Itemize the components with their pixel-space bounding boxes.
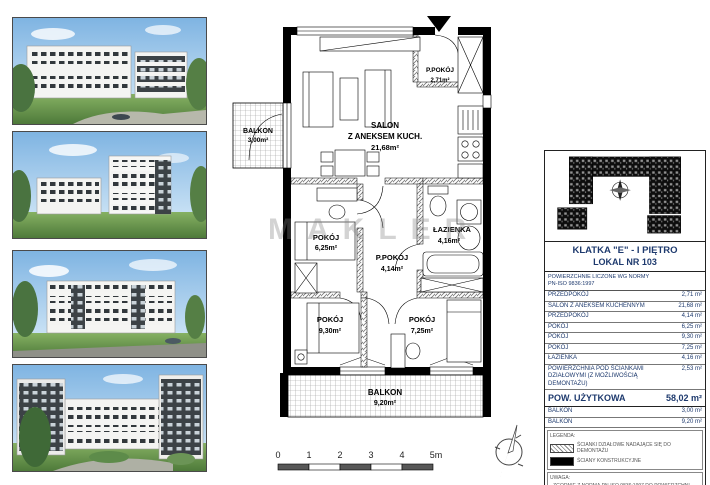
building-render-1 <box>13 18 206 124</box>
room-area: 9,20m² <box>374 400 397 407</box>
svg-text:4: 4 <box>399 450 404 460</box>
total-area-row: POW. UŻYTKOWA 58,02 m² <box>545 390 705 407</box>
area-row: POKÓJ7,25 m² <box>545 344 705 355</box>
building-photo-3 <box>12 250 207 358</box>
room-area-value: 2,53 m² <box>682 366 702 374</box>
room-area: 4,16m² <box>438 238 461 245</box>
room-name: PRZEDPOKÓJ <box>548 313 589 321</box>
unit-number-label: LOKAL NR 103 <box>547 257 703 268</box>
room-area: 21,68m² <box>371 143 399 152</box>
area-row: POKÓJ9,30 m² <box>545 333 705 344</box>
area-row: POWIERZCHNIA POD ŚCIANKAMI DZIAŁOWYMI (Z… <box>545 365 705 391</box>
building-block <box>27 46 187 98</box>
room-label: POKÓJ <box>313 233 339 242</box>
norm-note-line: POWIERZCHNIE LICZONE WG NORMY <box>548 274 702 281</box>
room-label: ŁAZIENKA <box>433 225 471 234</box>
balcony-row: BALKON3,00 m² <box>545 407 705 418</box>
legend-item-label: ŚCIANY KONSTRUKCYJNE <box>577 458 641 465</box>
balcony-left: BALKON 3,00m² <box>233 103 283 168</box>
room-label: POKÓJ <box>409 315 435 324</box>
unit-info-panel: KLATKA "E" - I PIĘTRO LOKAL NR 103 POWIE… <box>544 150 706 485</box>
room-name: SALON Z ANEKSEM KUCHENNYM <box>548 303 645 311</box>
notes-title: UWAGA: <box>550 475 700 482</box>
area-row: PRZEDPOKÓJ4,14 m² <box>545 312 705 323</box>
room-name: POKÓJ <box>548 324 568 332</box>
site-plan-minimap <box>545 151 705 242</box>
floor-plan-sheet: BALKON 3,00m² BALKON 9,20m² <box>0 0 710 485</box>
legend-item: ŚCIANKI DZIAŁOWE NADAJĄCE SIĘ DO DEMONTA… <box>550 442 700 456</box>
room-area: 6,25m² <box>315 245 338 252</box>
balcony-row: BALKON9,20 m² <box>545 418 705 429</box>
total-area-value: 58,02 m² <box>666 393 702 403</box>
hatch-swatch-icon <box>550 444 574 453</box>
svg-text:2: 2 <box>337 450 342 460</box>
room-label: P.POKÓJ <box>376 253 408 262</box>
building-block <box>47 281 175 333</box>
room-area-value: 4,14 m² <box>682 313 702 321</box>
room-area: 4,14m² <box>381 266 404 273</box>
building-render-2 <box>13 132 206 238</box>
room-area-value: 3,00 m² <box>682 408 702 416</box>
svg-text:0: 0 <box>275 450 280 460</box>
legend-title: LEGENDA: <box>550 433 700 440</box>
legend-item: ŚCIANY KONSTRUKCYJNE <box>550 457 700 466</box>
room-label: Z ANEKSEM KUCH. <box>348 132 422 141</box>
unit-title: KLATKA "E" - I PIĘTRO LOKAL NR 103 <box>545 242 705 272</box>
room-area: 7,25m² <box>411 328 434 335</box>
norm-note: POWIERZCHNIE LICZONE WG NORMY PN-ISO 983… <box>545 272 705 291</box>
svg-text:5m: 5m <box>430 450 443 460</box>
room-label: POKÓJ <box>317 315 343 324</box>
scale-bar: 0 1 2 3 4 5m <box>268 446 508 483</box>
building-photo-1 <box>12 17 207 125</box>
minimap-compass-icon <box>609 179 631 201</box>
building-render-3 <box>13 251 206 357</box>
solid-swatch-icon <box>550 457 574 466</box>
scale-labels: 0 1 2 3 4 5m <box>275 450 442 460</box>
total-area-label: POW. UŻYTKOWA <box>548 393 626 403</box>
room-name: BALKON <box>548 419 572 427</box>
room-area-value: 6,25 m² <box>682 324 702 332</box>
building-photo-4 <box>12 364 207 472</box>
building-render-4 <box>13 365 206 471</box>
area-row: POKÓJ6,25 m² <box>545 323 705 334</box>
balcony-bottom: BALKON 9,20m² <box>288 375 483 417</box>
area-row: SALON Z ANEKSEM KUCHENNYM21,68 m² <box>545 302 705 313</box>
legend-item-label: ŚCIANKI DZIAŁOWE NADAJĄCE SIĘ DO DEMONTA… <box>577 442 700 456</box>
svg-text:1: 1 <box>306 450 311 460</box>
north-arrow-icon <box>488 420 532 485</box>
room-label: SALON <box>371 121 399 130</box>
scale-segments <box>278 464 433 470</box>
legend-box: LEGENDA: ŚCIANKI DZIAŁOWE NADAJĄCE SIĘ D… <box>547 430 703 470</box>
room-area-value: 9,30 m² <box>682 334 702 342</box>
room-name: POKÓJ <box>548 334 568 342</box>
room-name: ŁAZIENKA <box>548 355 577 363</box>
norm-note-line: PN-ISO 9836:1997 <box>548 281 702 288</box>
room-area-value: 9,20 m² <box>682 419 702 427</box>
area-row: ŁAZIENKA4,16 m² <box>545 354 705 365</box>
staircase-floor-label: KLATKA "E" - I PIĘTRO <box>547 245 703 257</box>
room-label: BALKON <box>243 128 273 135</box>
room-area-value: 7,25 m² <box>682 345 702 353</box>
room-name: POKÓJ <box>548 345 568 353</box>
svg-text:3: 3 <box>368 450 373 460</box>
room-area-value: 2,71 m² <box>682 292 702 300</box>
room-area: 2,71m² <box>430 77 449 84</box>
building-photo-2 <box>12 131 207 239</box>
notes-box: UWAGA: - ZGODNIE Z NORMĄ PN-ISO 9836:199… <box>547 472 703 485</box>
room-name: BALKON <box>548 408 572 416</box>
floor-plan: BALKON 3,00m² BALKON 9,20m² <box>225 10 495 435</box>
room-area: 9,30m² <box>319 328 342 335</box>
room-name: POWIERZCHNIA POD ŚCIANKAMI DZIAŁOWYMI (Z… <box>548 366 660 389</box>
room-label: P.POKÓJ <box>426 65 454 74</box>
room-area-value: 21,68 m² <box>678 303 702 311</box>
area-row: PRZEDPOKÓJ2,71 m² <box>545 291 705 302</box>
room-name: PRZEDPOKÓJ <box>548 292 589 300</box>
room-label: BALKON <box>368 388 402 397</box>
room-area-value: 4,16 m² <box>682 355 702 363</box>
